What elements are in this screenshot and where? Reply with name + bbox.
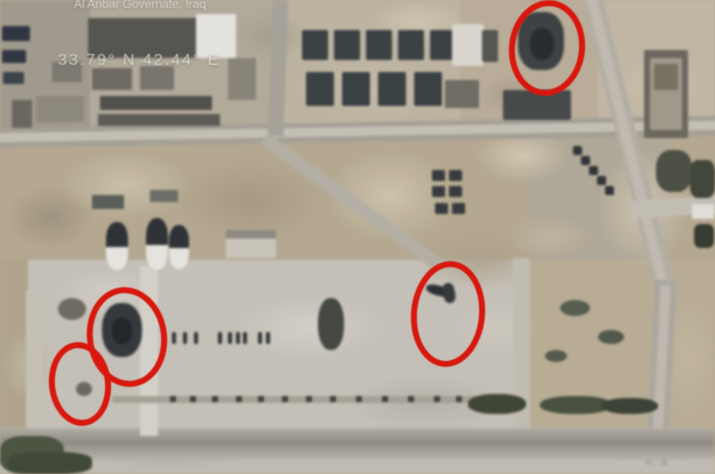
building bbox=[228, 58, 256, 100]
building bbox=[654, 64, 678, 90]
building-white-roof bbox=[452, 24, 484, 66]
damage-scorch bbox=[530, 28, 554, 60]
damage-mark bbox=[76, 382, 92, 396]
storage-tank bbox=[169, 225, 189, 269]
building bbox=[435, 203, 448, 214]
vegetation bbox=[468, 394, 526, 414]
damage-scorch bbox=[112, 318, 132, 344]
equipment bbox=[408, 396, 414, 402]
storage-tank bbox=[106, 222, 128, 270]
building bbox=[432, 170, 445, 181]
coordinates-caption: 33.79° N 42.44° E bbox=[58, 52, 220, 70]
terrain-mottle bbox=[5, 185, 95, 250]
building bbox=[432, 186, 445, 197]
vehicle bbox=[573, 146, 582, 155]
road-vertical bbox=[26, 290, 43, 445]
vegetation bbox=[656, 150, 692, 192]
terrain-mottle bbox=[235, 295, 385, 360]
equipment bbox=[236, 396, 242, 402]
satellite-terrain bbox=[0, 0, 715, 474]
satellite-image-frame: Al Anbar Governate, Iraq 33.79° N 42.44°… bbox=[0, 0, 715, 474]
aircraft bbox=[236, 332, 240, 344]
aircraft bbox=[218, 332, 222, 344]
location-caption: Al Anbar Governate, Iraq bbox=[35, 0, 245, 11]
vegetation bbox=[602, 398, 658, 414]
building bbox=[92, 195, 124, 209]
vehicle bbox=[581, 156, 590, 165]
building bbox=[449, 186, 462, 197]
building-barracks bbox=[378, 72, 406, 106]
equipment bbox=[306, 396, 312, 402]
aircraft bbox=[266, 332, 270, 344]
equipment bbox=[434, 396, 440, 402]
vehicle bbox=[589, 166, 598, 175]
equipment bbox=[170, 396, 176, 402]
building bbox=[482, 30, 498, 62]
aircraft bbox=[258, 332, 262, 344]
road-bottom-taxiway bbox=[0, 428, 715, 460]
vegetation bbox=[694, 224, 714, 248]
damage-mark bbox=[58, 298, 86, 320]
building bbox=[452, 203, 465, 214]
road-vertical bbox=[513, 258, 529, 448]
equipment bbox=[382, 396, 388, 402]
equipment bbox=[456, 396, 462, 402]
building-barracks bbox=[366, 30, 392, 60]
building-barracks bbox=[414, 72, 442, 106]
building bbox=[503, 90, 571, 120]
aircraft bbox=[228, 332, 232, 344]
vegetation bbox=[545, 350, 567, 362]
building bbox=[36, 96, 84, 122]
vehicle bbox=[605, 186, 614, 195]
taxiway-line bbox=[112, 396, 477, 403]
building-barracks bbox=[398, 30, 424, 60]
equipment bbox=[190, 396, 196, 402]
terrain-mottle bbox=[505, 215, 595, 260]
building-white-roof bbox=[692, 204, 714, 219]
building-barracks bbox=[306, 72, 334, 106]
building bbox=[445, 80, 479, 108]
aircraft bbox=[194, 332, 198, 344]
vegetation bbox=[560, 300, 590, 316]
vegetation bbox=[318, 298, 344, 350]
aircraft bbox=[172, 332, 176, 344]
vehicle bbox=[597, 176, 606, 185]
equipment bbox=[258, 396, 264, 402]
building bbox=[3, 72, 24, 84]
building bbox=[12, 100, 32, 128]
storage-tank bbox=[146, 218, 168, 270]
building bbox=[92, 68, 132, 90]
building bbox=[98, 114, 220, 126]
aircraft bbox=[183, 332, 187, 344]
apron-strip bbox=[140, 266, 158, 436]
building-barracks bbox=[334, 30, 360, 60]
vegetation bbox=[690, 160, 715, 198]
building bbox=[226, 230, 276, 258]
building bbox=[150, 190, 178, 202]
building bbox=[2, 50, 26, 63]
vegetation bbox=[8, 452, 92, 474]
equipment bbox=[356, 396, 362, 402]
equipment bbox=[330, 396, 336, 402]
building-barracks bbox=[342, 72, 370, 106]
equipment bbox=[212, 396, 218, 402]
building-barracks bbox=[302, 30, 328, 60]
building bbox=[2, 26, 30, 41]
building bbox=[449, 170, 462, 181]
vegetation bbox=[598, 330, 624, 344]
aircraft bbox=[243, 332, 247, 344]
equipment bbox=[282, 396, 288, 402]
building bbox=[100, 96, 212, 110]
